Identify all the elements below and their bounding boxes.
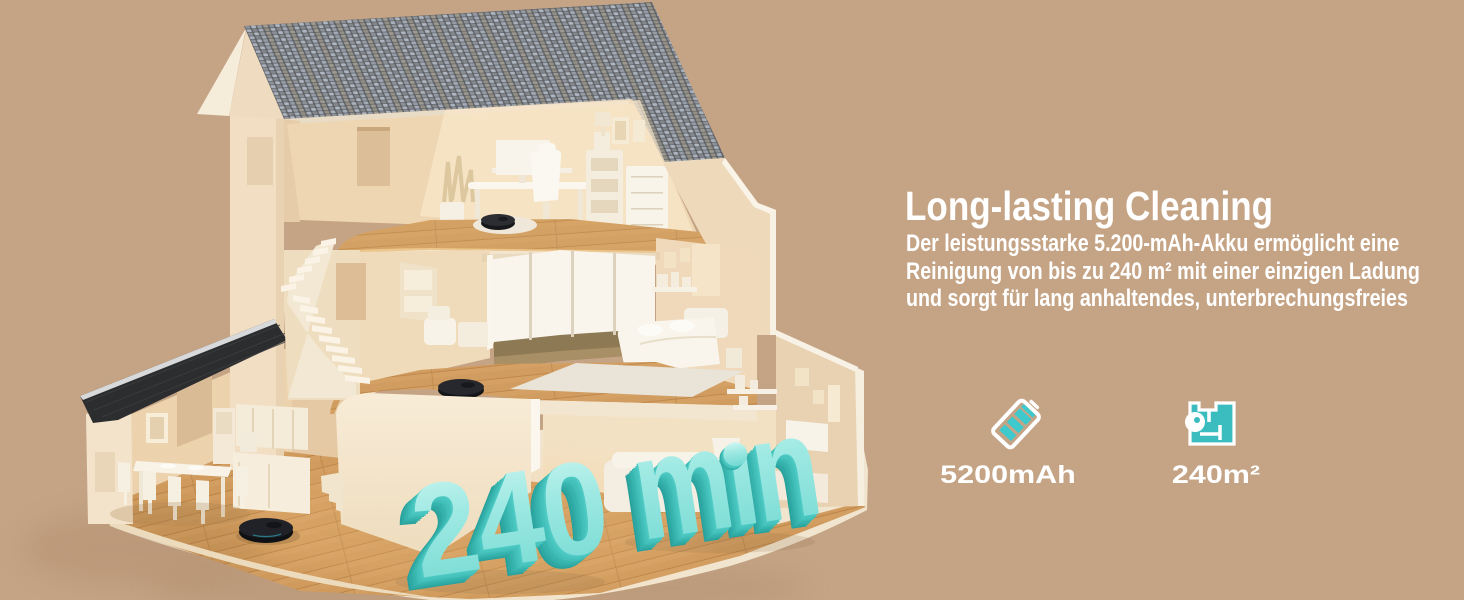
svg-text:240: 240 xyxy=(403,432,619,600)
svg-text:mın: mın xyxy=(623,383,826,571)
